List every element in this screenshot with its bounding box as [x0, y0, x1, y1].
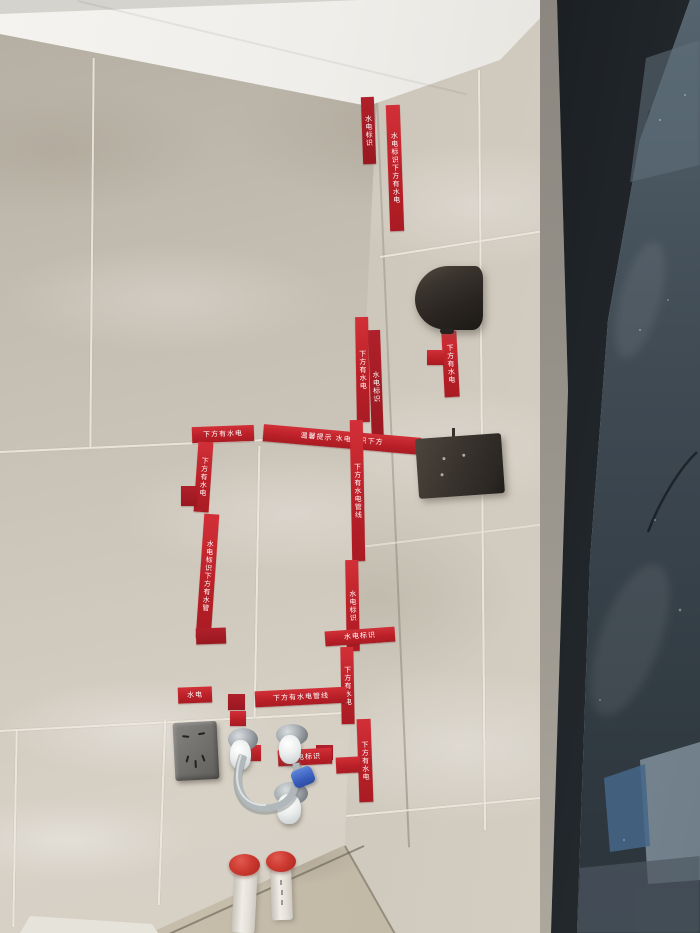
- glass-cable-line: [0, 0, 700, 933]
- bathroom-renovation-photo: 水电标识水电标识下方有水电下方有水电水电标识下方有水电温馨提示 水电标识下方下方…: [0, 0, 700, 933]
